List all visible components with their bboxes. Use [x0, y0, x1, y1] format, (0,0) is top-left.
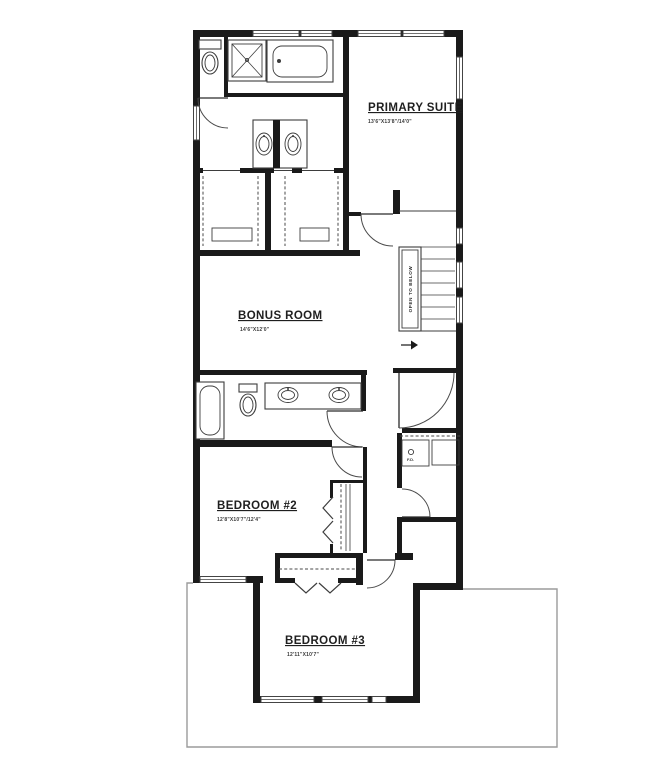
toilet-2-icon	[239, 384, 257, 416]
primary-suite-label: PRIMARY SUITE	[368, 102, 463, 114]
shower-icon	[228, 40, 266, 81]
bedroom-3-dims: 12'11"X10'7"	[287, 652, 319, 658]
doors	[198, 98, 454, 588]
stair-railing: OPEN TO BELOW	[399, 247, 421, 331]
bedroom-2-label: BEDROOM #2	[217, 500, 297, 512]
roofline-below	[187, 583, 557, 747]
door-water-closet	[198, 98, 228, 128]
double-vanity-icon	[253, 120, 307, 168]
floor-drain-label: F.D.	[407, 457, 414, 462]
door-bathroom-2	[327, 411, 363, 447]
bonus-room-label: BONUS ROOM	[238, 310, 323, 322]
bathtub-icon	[267, 40, 333, 82]
door-laundry	[402, 489, 430, 517]
floor-plan-page: OPEN TO BELOW	[0, 0, 657, 768]
bedroom-3-label: BEDROOM #3	[285, 635, 365, 647]
room-labels: PRIMARY SUITE 13'6"X13'8"/14'0" BONUS RO…	[217, 102, 463, 658]
bedroom-2-closet	[323, 484, 350, 551]
bathtub-2-icon	[196, 382, 224, 439]
double-vanity-2-icon	[265, 383, 361, 409]
staircase: OPEN TO BELOW	[399, 211, 456, 350]
door-bedroom-2	[332, 447, 362, 477]
bedroom-2-dims: 12'8"X10'7"/12'4"	[217, 517, 261, 523]
door-bedroom-3	[367, 560, 395, 588]
toilet-icon	[199, 40, 221, 74]
bonus-room-dims: 14'6"X12'0"	[240, 327, 270, 333]
windows	[194, 31, 463, 703]
door-primary-suite	[361, 214, 393, 246]
stair-direction-arrow-icon	[401, 341, 418, 350]
walls	[193, 30, 463, 703]
door-hallway	[399, 373, 454, 428]
washer-dryer-icon: F.D.	[400, 436, 461, 466]
primary-suite-dims: 13'6"X13'8"/14'0"	[368, 119, 412, 125]
floor-plan-drawing: OPEN TO BELOW	[0, 0, 657, 768]
open-to-below-label: OPEN TO BELOW	[408, 266, 413, 313]
